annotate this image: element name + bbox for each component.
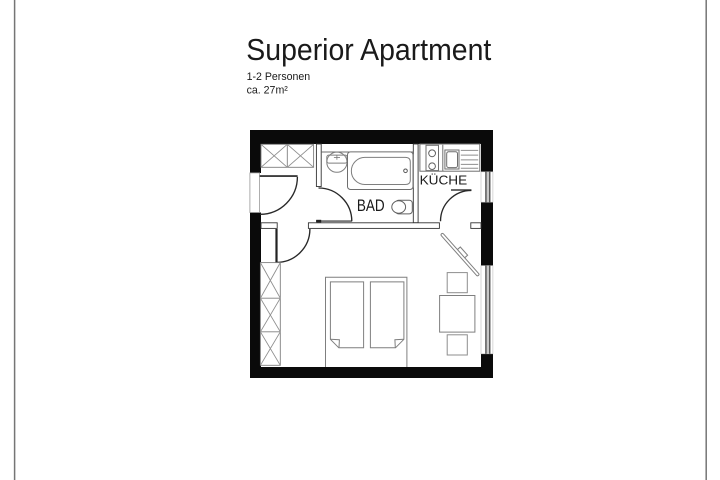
svg-text:1-2 Personen: 1-2 Personen [247,71,311,83]
svg-text:Superior Apartment: Superior Apartment [246,33,492,67]
svg-text:BAD: BAD [357,197,385,215]
svg-text:KÜCHE: KÜCHE [420,173,468,188]
svg-text:ca. 27m²: ca. 27m² [247,85,289,97]
